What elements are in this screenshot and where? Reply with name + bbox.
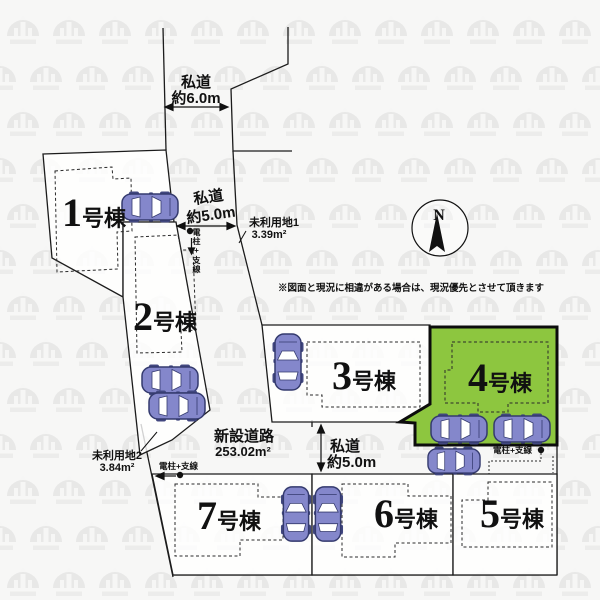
north-road-label-1: 私道 bbox=[180, 73, 211, 91]
utility-pole-dot bbox=[177, 472, 183, 478]
unused-land-2-area: 3.84m² bbox=[100, 462, 135, 474]
unused-land-2-label: 未利用地2 bbox=[91, 448, 142, 462]
south-road-label-2: 約5.0m bbox=[327, 453, 376, 471]
compass-n-label: N bbox=[433, 207, 445, 224]
car bbox=[431, 414, 487, 445]
new-road-label-2: 253.02m² bbox=[215, 444, 271, 459]
utility-pole-label-east: 電柱+支線 bbox=[493, 445, 532, 455]
unused-land-1-label: 未利用地1 bbox=[248, 215, 299, 229]
car bbox=[428, 447, 480, 476]
car bbox=[494, 414, 550, 445]
utility-pole-label-southwest: 電柱+支線 bbox=[159, 461, 198, 471]
car bbox=[273, 334, 304, 390]
utility-pole-label-vertical: 電柱+支線 bbox=[192, 228, 200, 274]
car bbox=[281, 487, 311, 541]
site-plan-diagram: 1号棟 2号棟 3号棟 4号棟 5号棟 6号棟 7号棟 私道 約6.0m 私道 … bbox=[0, 0, 600, 600]
south-road-label-1: 私道 bbox=[329, 437, 360, 455]
north-road-label-2: 約6.0m bbox=[171, 89, 220, 107]
disclaimer-text: ※図面と現況に相違がある場合は、現況優先とさせて頂きます bbox=[278, 282, 545, 294]
car bbox=[122, 192, 178, 223]
car bbox=[149, 391, 205, 422]
utility-pole-dot bbox=[538, 447, 544, 453]
new-road-label-1: 新設道路 bbox=[214, 427, 275, 445]
compass: N bbox=[412, 200, 468, 256]
unused-land-1-area: 3.39m² bbox=[252, 229, 287, 241]
car bbox=[313, 487, 343, 541]
